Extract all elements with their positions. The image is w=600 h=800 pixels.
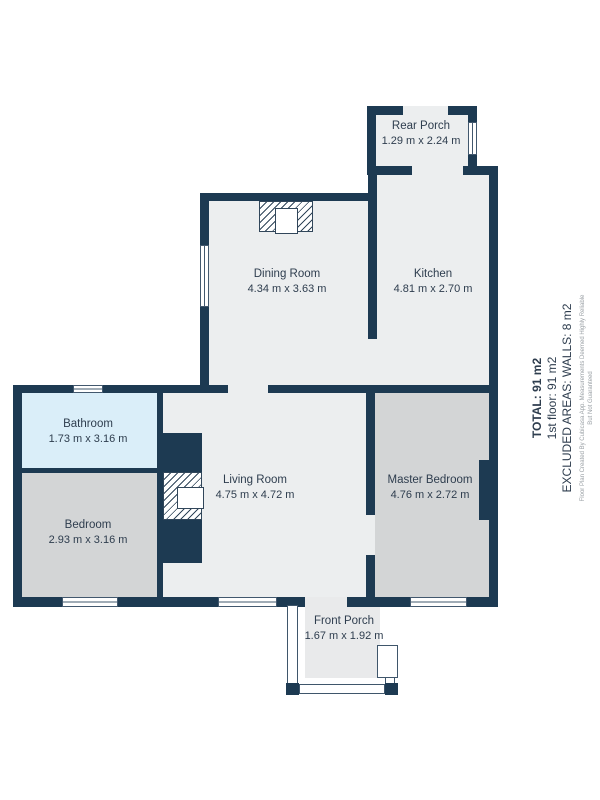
disclaimer-text: Floor Plan Created By Cubicasa App. Meas… — [579, 293, 595, 503]
room-name: Master Bedroom — [355, 473, 505, 488]
room-name: Rear Porch — [346, 119, 496, 134]
room-name: Kitchen — [358, 267, 508, 282]
wall-mid-horizontal-left — [13, 385, 228, 393]
door-opening-dining-living — [228, 385, 268, 393]
room-dimensions: 1.67 m x 1.92 m — [269, 629, 419, 644]
room-name: Bedroom — [13, 518, 163, 533]
room-name: Living Room — [180, 473, 330, 488]
window-bedroom-bottom — [62, 597, 118, 607]
wall-right-outer — [489, 166, 498, 607]
room-dimensions: 1.73 m x 3.16 m — [13, 432, 163, 447]
wall-kitchen-top-left — [367, 166, 412, 175]
room-label-bedroom: Bedroom 2.93 m x 3.16 m — [13, 518, 163, 548]
room-dimensions: 1.29 m x 2.24 m — [346, 134, 496, 149]
room-label-living-room: Living Room 4.75 m x 4.72 m — [180, 473, 330, 503]
wall-bathroom-bedroom-divider — [20, 468, 157, 473]
room-dimensions: 4.81 m x 2.70 m — [358, 282, 508, 297]
door-opening-rear-porch-entry — [403, 106, 448, 115]
room-label-kitchen: Kitchen 4.81 m x 2.70 m — [358, 267, 508, 297]
fireplace-icon-dining — [259, 201, 313, 232]
excluded-areas-text: EXCLUDED AREAS: WALLS: 8 m2 — [560, 293, 575, 503]
porch-railing-bottom — [299, 684, 385, 694]
wall-living-master-lower — [366, 555, 375, 597]
window-master-bottom — [410, 597, 467, 607]
porch-post-right — [385, 683, 398, 695]
total-area-text: TOTAL: 91 m2 — [530, 293, 545, 503]
room-name: Front Porch — [269, 614, 419, 629]
room-name: Bathroom — [13, 417, 163, 432]
room-dimensions: 4.75 m x 4.72 m — [180, 488, 330, 503]
porch-post-left — [286, 683, 299, 695]
room-label-bathroom: Bathroom 1.73 m x 3.16 m — [13, 417, 163, 447]
wall-dining-top — [201, 193, 377, 201]
room-name: Dining Room — [212, 267, 362, 282]
door-opening-rear-porch-kitchen — [412, 166, 463, 175]
window-bathroom-top — [73, 385, 103, 393]
door-opening-living-master — [366, 515, 375, 555]
room-dimensions: 4.34 m x 3.63 m — [212, 282, 362, 297]
floorplan-canvas: Rear Porch 1.29 m x 2.24 m Kitchen 4.81 … — [0, 0, 600, 800]
room-label-front-porch: Front Porch 1.67 m x 1.92 m — [269, 614, 419, 644]
wall-mid-horizontal-right — [268, 385, 377, 393]
window-dining-left — [200, 245, 209, 307]
fireplace-hearth-dining — [275, 208, 298, 234]
room-label-dining-room: Dining Room 4.34 m x 3.63 m — [212, 267, 362, 297]
room-dimensions: 2.93 m x 3.16 m — [13, 533, 163, 548]
porch-step — [377, 645, 398, 678]
room-label-rear-porch: Rear Porch 1.29 m x 2.24 m — [346, 119, 496, 149]
room-label-master-bedroom: Master Bedroom 4.76 m x 2.72 m — [355, 473, 505, 503]
room-dimensions: 4.76 m x 2.72 m — [355, 488, 505, 503]
area-summary: TOTAL: 91 m2 1st floor: 91 m2 EXCLUDED A… — [530, 293, 590, 503]
wall-kitchen-master-divider — [377, 385, 489, 393]
window-living-bottom — [218, 597, 277, 607]
floor-area-text: 1st floor: 91 m2 — [545, 293, 560, 503]
door-opening-dining-kitchen — [368, 339, 377, 385]
